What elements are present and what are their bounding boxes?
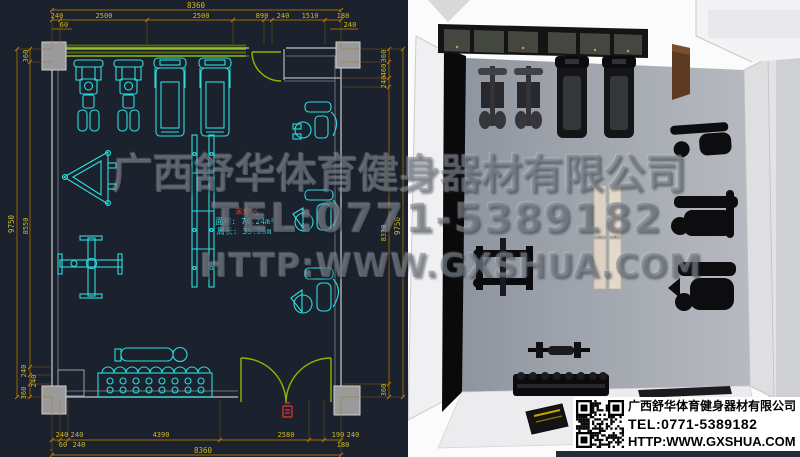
svg-text:8550: 8550 (22, 218, 30, 235)
plan-triangle-machine-icon (63, 151, 117, 206)
render-cabinet (672, 44, 690, 100)
svg-text:240: 240 (71, 431, 84, 439)
plan-bench-icon (115, 348, 187, 362)
company-info-card: 广西舒华体育健身器材有限公司 TEL:0771-5389182 HTTP:WWW… (573, 397, 800, 451)
plan-rack-icon (192, 135, 214, 287)
company-tel: TEL:0771-5389182 (628, 415, 796, 433)
svg-text:2500: 2500 (96, 12, 113, 20)
screenshot-stage: 8360 240 2500 2500 890 240 1510 180 60 2… (0, 0, 800, 457)
plan-room-label: 未命名 面积: 74.24m² 周长: 35.26m (215, 206, 274, 236)
plan-treadmill-icon (199, 58, 231, 136)
svg-text:240: 240 (20, 365, 28, 378)
floor-plan-drawing: 8360 240 2500 2500 890 240 1510 180 60 2… (0, 0, 408, 457)
plan-cross-machine-icon (58, 236, 122, 298)
svg-text:4390: 4390 (153, 431, 170, 439)
render-dumbbell-rack (513, 372, 609, 396)
svg-text:周长: 35.26m: 周长: 35.26m (217, 226, 272, 236)
render-treadmill (555, 56, 589, 138)
svg-text:2500: 2500 (193, 12, 210, 20)
plan-window-stripes (58, 46, 246, 57)
svg-text:240: 240 (344, 21, 357, 29)
svg-text:240: 240 (73, 441, 86, 449)
svg-text:9750: 9750 (393, 216, 402, 235)
svg-text:8360: 8360 (194, 446, 213, 455)
render-right-band (776, 0, 800, 457)
render-drawing (408, 0, 800, 457)
svg-text:360: 360 (380, 384, 388, 397)
svg-text:240: 240 (51, 12, 64, 20)
svg-text:60: 60 (59, 441, 67, 449)
company-name: 广西舒华体育健身器材有限公司 (628, 397, 796, 415)
render-panel: 广西舒华体育健身器材有限公司 TEL:0771-5389182 HTTP:WWW… (408, 0, 800, 457)
svg-text:460: 460 (380, 64, 388, 77)
svg-text:240: 240 (347, 431, 360, 439)
render-window-strip (438, 24, 648, 58)
svg-text:190: 190 (332, 431, 345, 439)
svg-text:180: 180 (337, 441, 350, 449)
svg-text:9750: 9750 (7, 214, 16, 233)
plan-multigym-icon (74, 60, 103, 131)
plan-dumbbell-rack-icon (98, 367, 212, 397)
svg-text:240: 240 (30, 375, 38, 388)
svg-text:8360: 8360 (187, 1, 206, 10)
render-left-shadow (442, 48, 466, 412)
plan-seated-machine-icon (293, 102, 337, 139)
svg-text:未命名: 未命名 (235, 206, 259, 216)
svg-text:240: 240 (277, 12, 290, 20)
svg-text:240: 240 (56, 431, 69, 439)
svg-text:面积: 74.24m²: 面积: 74.24m² (215, 216, 274, 226)
svg-text:60: 60 (60, 21, 68, 29)
plan-seated-machine-icon (291, 268, 339, 313)
render-seated-machine (668, 262, 736, 311)
plan-seated-machine-icon (293, 190, 338, 231)
floor-plan-panel: 8360 240 2500 2500 890 240 1510 180 60 2… (0, 0, 408, 457)
bottom-edge-strip (556, 451, 800, 457)
render-treadmill (602, 56, 636, 138)
svg-text:360: 360 (380, 50, 388, 63)
svg-text:890: 890 (256, 12, 269, 20)
svg-text:240: 240 (380, 76, 388, 89)
plan-entry-marker (283, 403, 292, 417)
plan-treadmill-icon (154, 58, 186, 136)
svg-text:1510: 1510 (302, 12, 319, 20)
qr-code (576, 400, 624, 448)
svg-text:360: 360 (22, 50, 30, 63)
plan-multigym-icon (114, 60, 143, 131)
company-url: HTTP:WWW.GXSHUA.COM (628, 433, 796, 451)
svg-text:8330: 8330 (380, 225, 388, 242)
svg-text:360: 360 (20, 387, 28, 400)
svg-text:180: 180 (337, 12, 350, 20)
svg-text:2580: 2580 (278, 431, 295, 439)
